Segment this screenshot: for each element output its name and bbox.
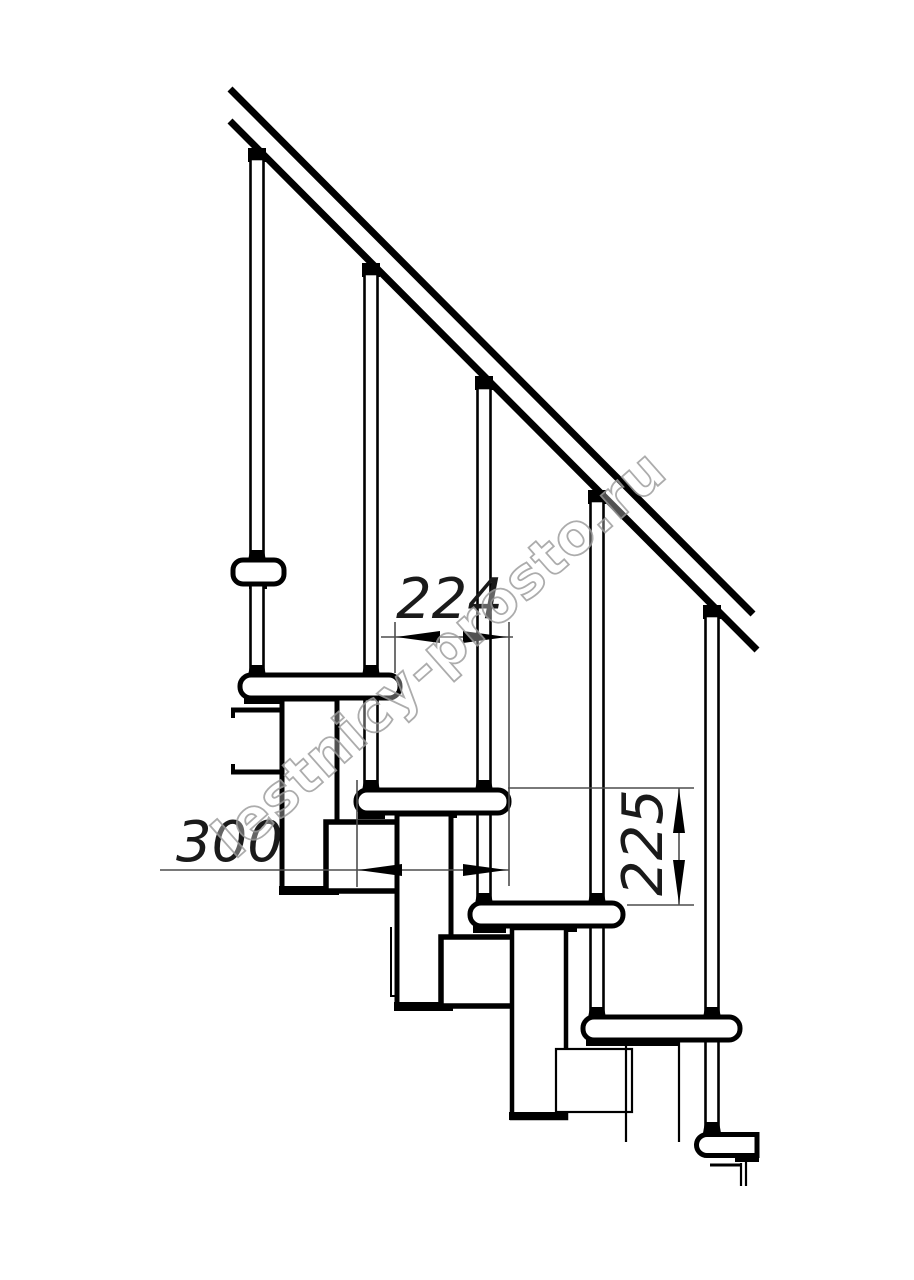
dim-label-rise: 225 — [611, 789, 676, 896]
tube4-base-plate — [509, 1112, 568, 1120]
staircase-elevation-drawing: 224 300 225 lestnicy-prosto.ru — [0, 0, 914, 1280]
tread-6 — [697, 1135, 758, 1156]
collar-b1-t2 — [248, 665, 266, 676]
collar-b2-t3 — [362, 780, 380, 791]
collar-b1-t1 — [248, 550, 266, 561]
tread-4 — [470, 903, 623, 926]
baluster-5 — [706, 616, 719, 1132]
square-joint-module-4 — [556, 1049, 632, 1112]
tread-3 — [356, 790, 509, 813]
tread-5 — [583, 1017, 740, 1040]
collar-b3-t4 — [475, 893, 493, 904]
collar-b5-t6 — [703, 1122, 721, 1133]
staircase-drawing-sheet: 224 300 225 lestnicy-prosto.ru — [0, 0, 914, 1280]
collar-b5-t5 — [703, 1007, 721, 1018]
collar-b4-t4 — [588, 893, 606, 904]
collar-b3-t3 — [475, 780, 493, 791]
collar-b4-t5 — [588, 1007, 606, 1018]
square-joint-module-2 — [326, 822, 403, 891]
square-joint-module-3 — [441, 937, 518, 1006]
baluster-1 — [251, 159, 264, 675]
baluster-4 — [591, 501, 604, 1017]
tread-1 — [233, 560, 284, 584]
